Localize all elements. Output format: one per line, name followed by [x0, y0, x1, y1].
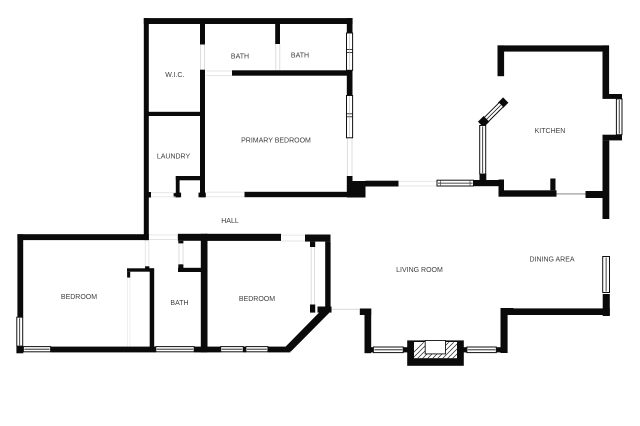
svg-text:BATH: BATH — [291, 53, 309, 60]
svg-text:LIVING ROOM: LIVING ROOM — [396, 267, 443, 274]
svg-text:PRIMARY BEDROOM: PRIMARY BEDROOM — [241, 138, 311, 145]
svg-text:W.I.C.: W.I.C. — [165, 72, 184, 79]
svg-text:BEDROOM: BEDROOM — [61, 294, 97, 301]
svg-text:LAUNDRY: LAUNDRY — [157, 154, 191, 161]
svg-text:BATH: BATH — [170, 300, 188, 307]
svg-text:BEDROOM: BEDROOM — [239, 296, 275, 303]
svg-text:DINING AREA: DINING AREA — [529, 256, 574, 263]
svg-text:KITCHEN: KITCHEN — [535, 128, 566, 135]
svg-text:BATH: BATH — [231, 54, 249, 61]
svg-text:HALL: HALL — [221, 218, 239, 225]
